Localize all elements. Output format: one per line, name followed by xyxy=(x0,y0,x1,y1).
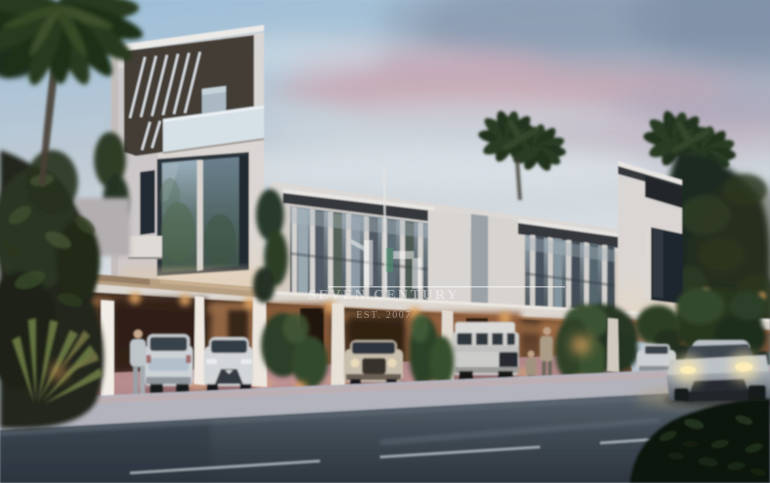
svg-text:EST. 2007: EST. 2007 xyxy=(356,310,412,321)
svg-text:SEVEN CENTURY: SEVEN CENTURY xyxy=(308,288,459,303)
